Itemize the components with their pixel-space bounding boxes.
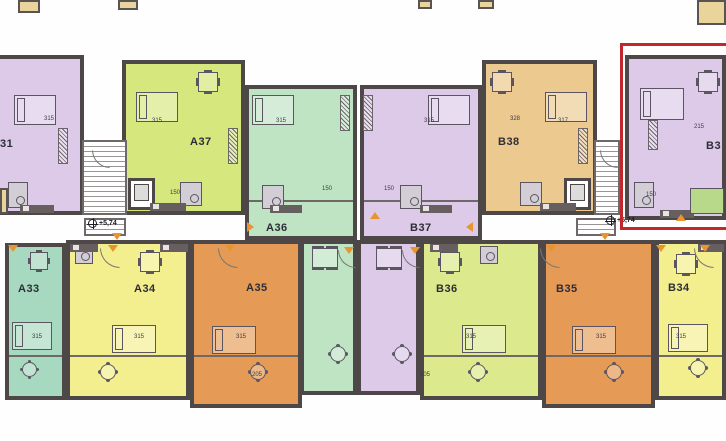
unit-label-b38: B38 bbox=[498, 136, 520, 148]
bath-icon bbox=[520, 182, 542, 206]
kitchen-icon bbox=[20, 205, 54, 213]
entry-marker-icon bbox=[370, 212, 380, 219]
rtable-icon bbox=[690, 360, 706, 376]
entry-marker-icon bbox=[410, 247, 420, 254]
dimension-label: 150 bbox=[170, 190, 180, 196]
unit-a35-area bbox=[190, 240, 302, 408]
unit-label-a33: A33 bbox=[18, 283, 40, 295]
wardrobe-icon bbox=[228, 128, 238, 164]
wardrobe-icon bbox=[578, 128, 588, 164]
kitchen-icon bbox=[420, 205, 452, 213]
dimension-label: 205 bbox=[252, 372, 262, 378]
table-icon bbox=[676, 254, 696, 274]
dimension-label: 315 bbox=[466, 334, 476, 340]
bed-icon bbox=[572, 326, 616, 354]
rtable-icon bbox=[606, 364, 622, 380]
interior-wall bbox=[546, 355, 651, 357]
bed-icon bbox=[212, 326, 256, 354]
kitchen-icon bbox=[150, 203, 186, 211]
bath-icon bbox=[400, 185, 422, 209]
unit-label-31-partial: 31 bbox=[0, 138, 13, 150]
interior-wall bbox=[9, 355, 62, 357]
balcony-fragment bbox=[418, 0, 432, 9]
entry-marker-icon bbox=[344, 247, 354, 254]
dimension-label: 315 bbox=[424, 118, 434, 124]
entry-marker-icon bbox=[546, 245, 556, 252]
unit-label-a35: A35 bbox=[246, 282, 268, 294]
unit-label-a37: A37 bbox=[190, 136, 212, 148]
balcony-fragment bbox=[0, 188, 8, 214]
entry-marker-icon bbox=[108, 245, 118, 252]
bed-icon bbox=[252, 95, 294, 125]
rtable-icon bbox=[22, 362, 37, 377]
kitchen-icon bbox=[540, 203, 576, 211]
balcony-fragment bbox=[478, 0, 494, 9]
dimension-label: 150 bbox=[384, 186, 394, 192]
benchmark-icon bbox=[88, 219, 97, 228]
kitchen-icon bbox=[70, 244, 98, 252]
rtable-icon bbox=[330, 346, 346, 362]
kitchen-icon bbox=[160, 244, 188, 252]
entry-marker-icon bbox=[112, 233, 122, 240]
dimension-label: 317 bbox=[558, 118, 568, 124]
table-icon bbox=[140, 252, 160, 272]
floor-plan: 3153153153153283172153153153153153153151… bbox=[0, 0, 726, 441]
bed-icon bbox=[428, 95, 470, 125]
balcony-fragment bbox=[697, 0, 726, 25]
table-icon bbox=[440, 252, 460, 272]
unit-label-b37: B37 bbox=[410, 222, 432, 234]
unit-label-b35: B35 bbox=[556, 283, 578, 295]
entry-marker-icon bbox=[225, 245, 235, 252]
table-icon bbox=[198, 72, 218, 92]
rtable-icon bbox=[394, 346, 410, 362]
interior-wall bbox=[659, 355, 722, 357]
interior-wall bbox=[70, 355, 186, 357]
elevation-marker-a: +5,74 bbox=[88, 219, 117, 228]
dimension-label: 315 bbox=[236, 334, 246, 340]
unit-label-b34: B34 bbox=[668, 282, 690, 294]
interior-wall bbox=[424, 355, 538, 357]
dimension-label: 315 bbox=[276, 118, 286, 124]
wardrobe-icon bbox=[58, 128, 68, 164]
entry-marker-icon bbox=[656, 245, 666, 252]
highlight-box-unit-b39 bbox=[620, 43, 726, 230]
entry-marker-icon bbox=[247, 222, 254, 232]
table-icon bbox=[30, 252, 48, 270]
benchmark-icon bbox=[606, 216, 615, 225]
elevation-value: +5,74 bbox=[99, 220, 117, 227]
dimension-label: 315 bbox=[676, 334, 686, 340]
dimension-label: 315 bbox=[32, 334, 42, 340]
dimension-label: 315 bbox=[134, 334, 144, 340]
dimension-label: 315 bbox=[152, 118, 162, 124]
unit-label-a36: A36 bbox=[266, 222, 288, 234]
wardrobe-icon bbox=[340, 95, 350, 131]
dimension-label: 315 bbox=[596, 334, 606, 340]
unit-label-a34: A34 bbox=[134, 283, 156, 295]
entry-marker-icon bbox=[600, 233, 610, 240]
wardrobe-icon bbox=[363, 95, 373, 131]
table6-icon bbox=[312, 248, 338, 268]
unit-label-b36: B36 bbox=[436, 283, 458, 295]
bed-icon bbox=[668, 324, 708, 352]
rtable-icon bbox=[470, 364, 486, 380]
balcony-fragment bbox=[18, 0, 40, 13]
kitchen-icon bbox=[430, 244, 458, 252]
dimension-label: 150 bbox=[322, 186, 332, 192]
bath-icon bbox=[480, 246, 498, 264]
balcony-fragment bbox=[118, 0, 138, 10]
entry-marker-icon bbox=[466, 222, 473, 232]
dimension-label: 205 bbox=[420, 372, 430, 378]
entry-marker-icon bbox=[8, 245, 18, 252]
table-icon bbox=[492, 72, 512, 92]
table6-icon bbox=[376, 248, 402, 268]
dimension-label: 315 bbox=[44, 116, 54, 122]
rtable-icon bbox=[100, 364, 116, 380]
kitchen-icon bbox=[270, 205, 302, 213]
entry-marker-icon bbox=[700, 245, 710, 252]
interior-wall bbox=[194, 355, 298, 357]
dimension-label: 328 bbox=[510, 116, 520, 122]
unit-a34-area bbox=[66, 240, 190, 400]
